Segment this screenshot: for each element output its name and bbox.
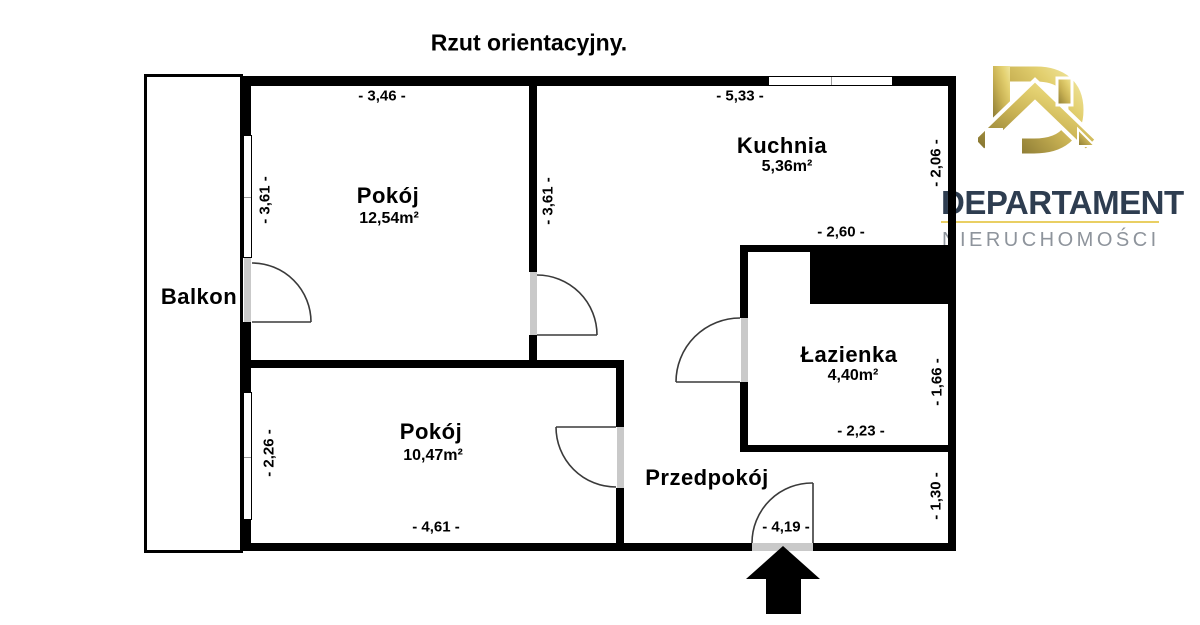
door-jamb — [617, 427, 624, 488]
dim-pokoj2-width: - 4,61 - — [412, 519, 460, 536]
wall — [740, 245, 948, 252]
dim-right-upper: - 2,06 - — [928, 139, 945, 187]
wall — [616, 488, 624, 543]
dim-lazienka-width: - 2,60 - — [817, 224, 865, 241]
dim-pokoj1-width: - 3,46 - — [358, 88, 406, 105]
wall — [740, 445, 948, 452]
door-swing-arc — [252, 263, 311, 322]
dim-lazienka-bottom: - 2,23 - — [837, 423, 885, 440]
door-swing-arc — [537, 275, 597, 335]
wall — [813, 543, 956, 551]
wall — [243, 322, 251, 392]
logo-divider — [941, 221, 1159, 223]
logo-brand: DEPARTAMENT — [941, 186, 1161, 219]
dim-right-mid: - 1,66 - — [929, 358, 946, 406]
room-label-lazienka: Łazienka — [801, 342, 898, 368]
dim-kuchnia-width: - 5,33 - — [716, 88, 764, 105]
dim-pokoj2-height: - 2,26 - — [261, 429, 278, 477]
wall — [616, 368, 624, 427]
door-swing-arc — [676, 318, 740, 382]
room-area-lazienka: 4,40m² — [828, 367, 879, 385]
entrance-arrow-icon — [746, 546, 820, 614]
wall — [529, 86, 537, 272]
page-title: Rzut orientacyjny. — [431, 30, 627, 57]
logo-house-d-icon — [978, 66, 1096, 170]
room-label-przedpokoj: Przedpokój — [645, 465, 769, 491]
room-area-pokoj1: 12,54m² — [359, 210, 419, 228]
door-jamb — [741, 318, 748, 382]
wall — [243, 360, 624, 368]
balcony-outline — [144, 74, 243, 553]
wall — [243, 520, 251, 551]
door-jamb — [244, 258, 251, 322]
window — [243, 135, 252, 258]
dim-right-lower: - 1,30 - — [928, 472, 945, 520]
window — [768, 76, 893, 86]
wall — [243, 543, 752, 551]
entrance-door-jamb — [752, 543, 813, 551]
dim-pokoj1-height: - 3,61 - — [257, 176, 274, 224]
wall — [948, 76, 956, 551]
room-label-pokoj1: Pokój — [357, 183, 419, 209]
wall — [740, 382, 748, 445]
room-label-kuchnia: Kuchnia — [737, 133, 827, 159]
wall — [243, 76, 251, 135]
floor-plan-canvas: Rzut orientacyjny. — [0, 0, 1200, 625]
room-area-kuchnia: 5,36m² — [762, 158, 813, 176]
ventilation-shaft — [810, 252, 948, 304]
logo-subtitle: NIERUCHOMOŚCI — [942, 230, 1162, 250]
dim-entrance-width: - 4,19 - — [762, 519, 810, 536]
dim-kuchnia-height: - 3,61 - — [540, 177, 557, 225]
window — [243, 392, 252, 520]
room-area-pokoj2: 10,47m² — [403, 447, 463, 465]
room-label-pokoj2: Pokój — [400, 419, 462, 445]
door-jamb — [530, 272, 537, 335]
room-label-balkon: Balkon — [161, 284, 237, 310]
wall — [740, 252, 748, 318]
door-swing-arc — [556, 427, 616, 487]
